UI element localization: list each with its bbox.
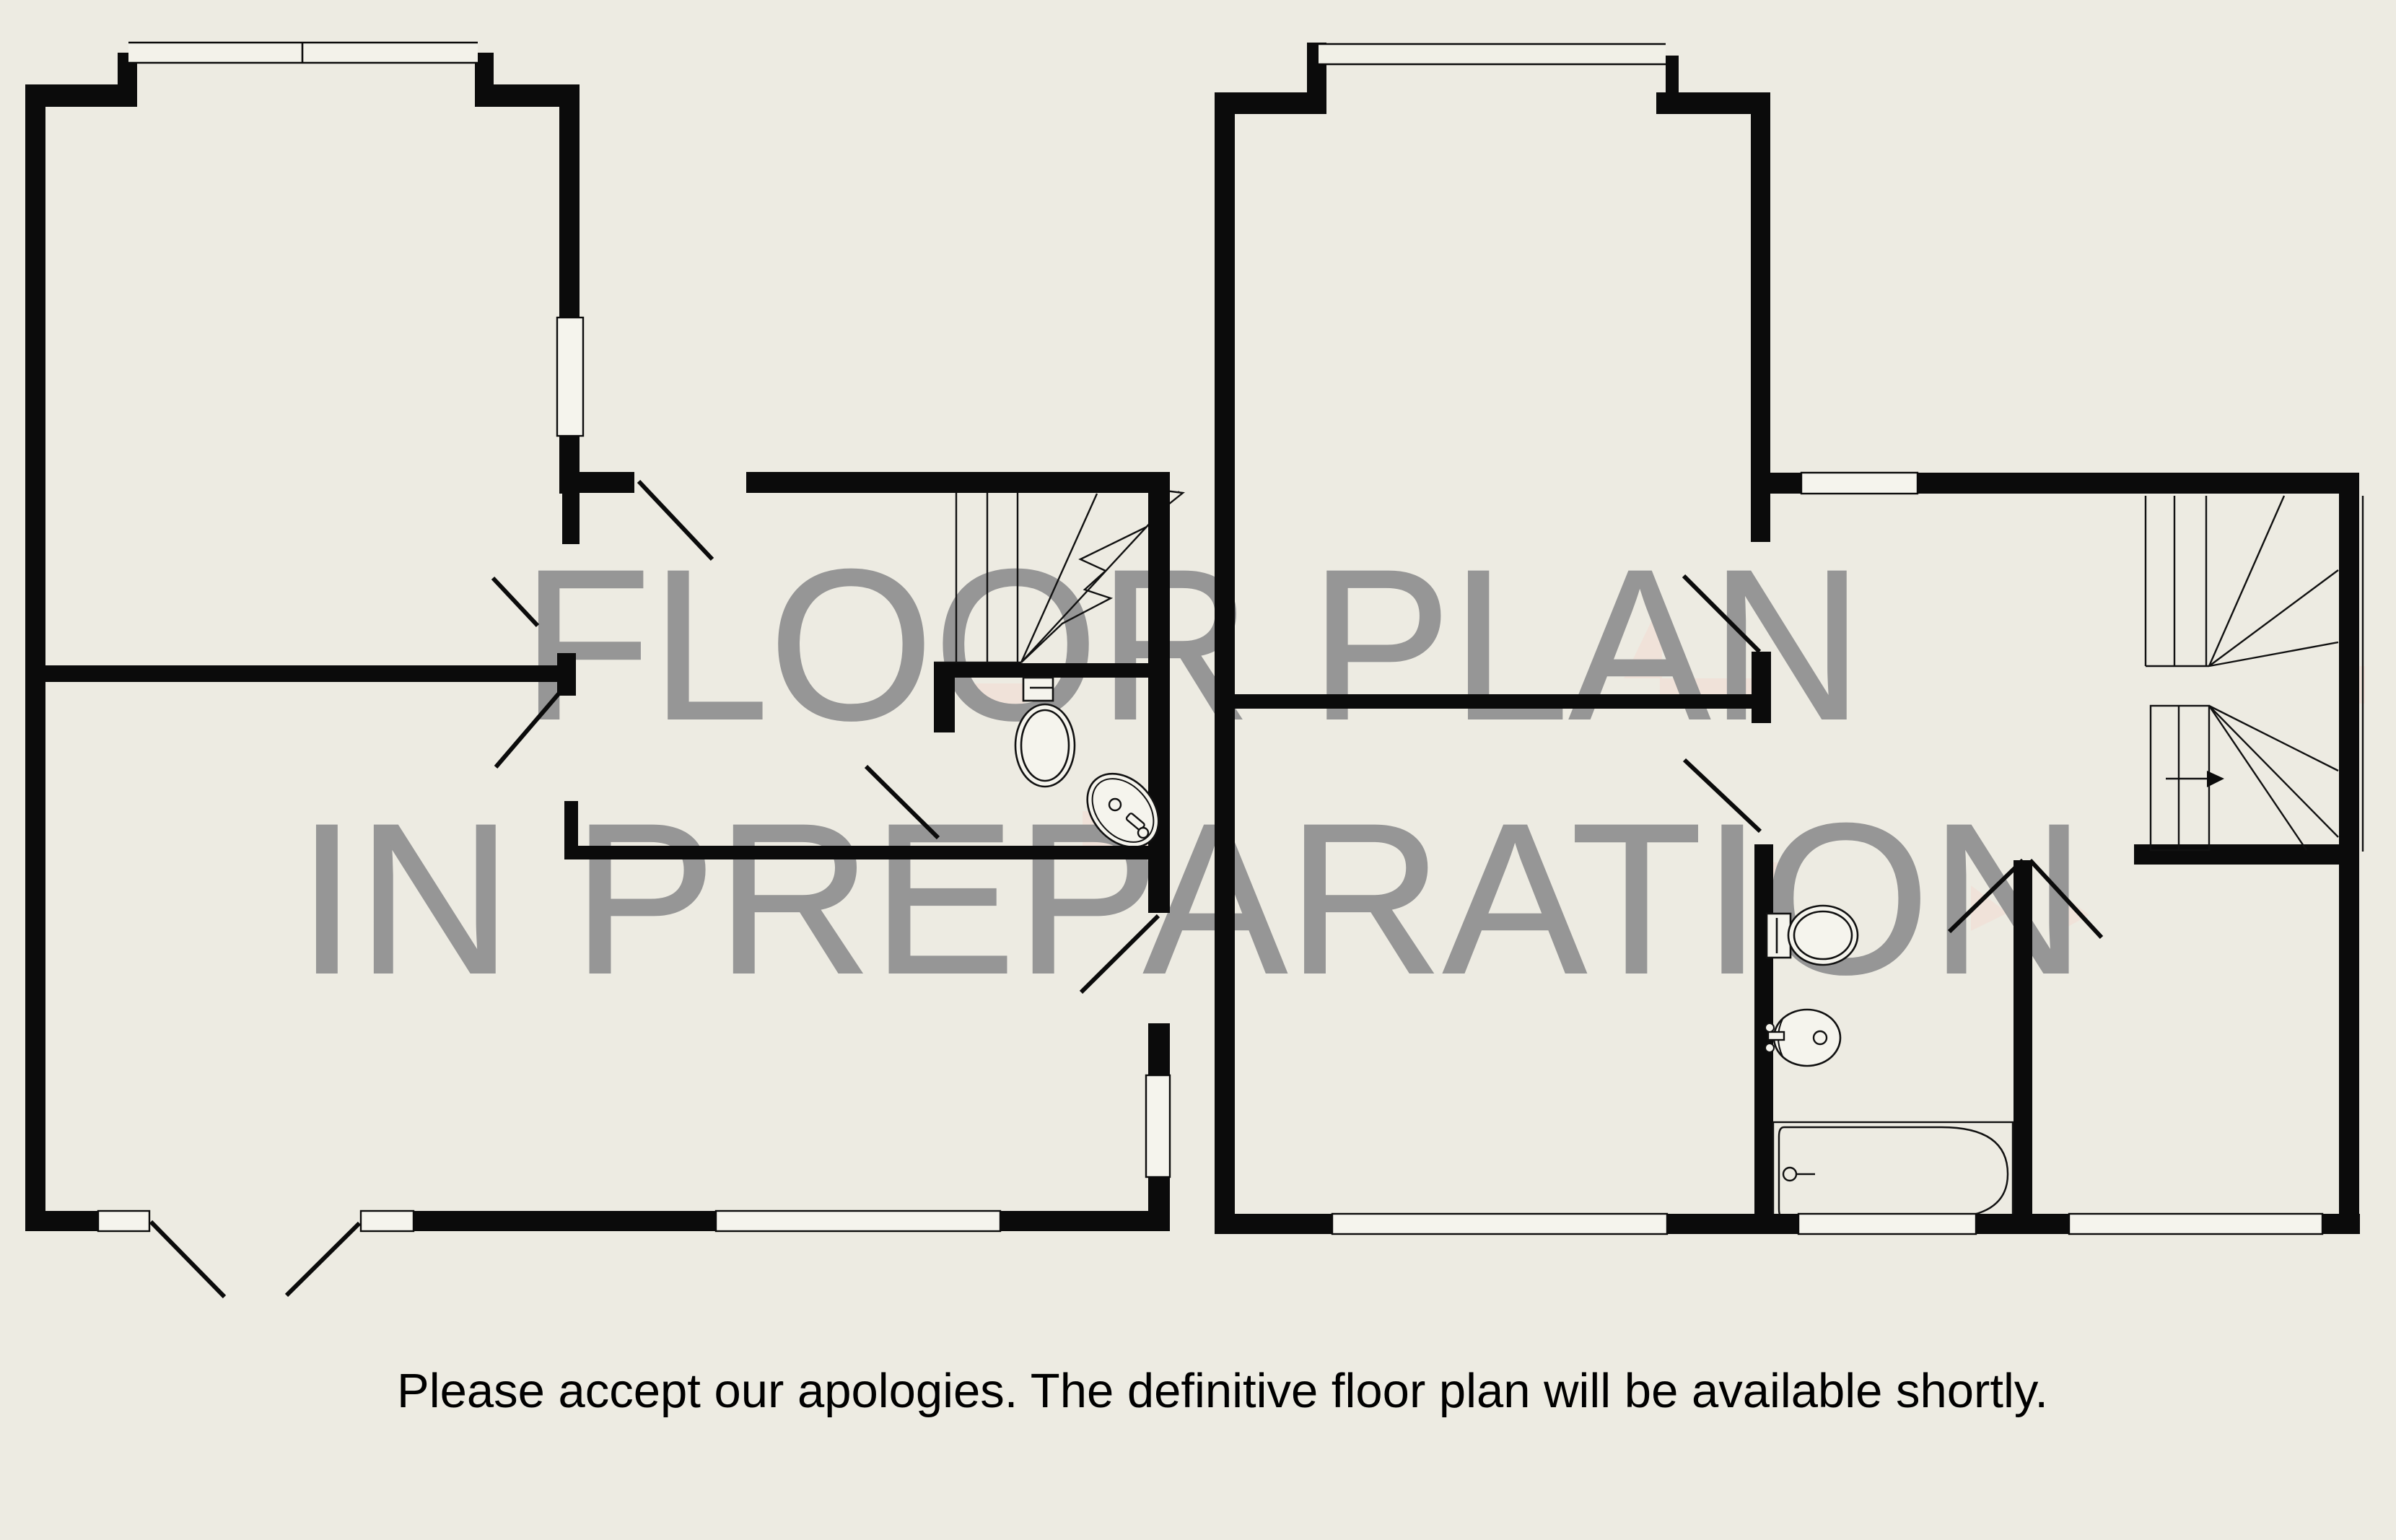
- svg-text:Please accept our apologies. T: Please accept our apologies. The definit…: [397, 1364, 2048, 1418]
- svg-text:FLOOR PLAN: FLOOR PLAN: [522, 525, 1863, 764]
